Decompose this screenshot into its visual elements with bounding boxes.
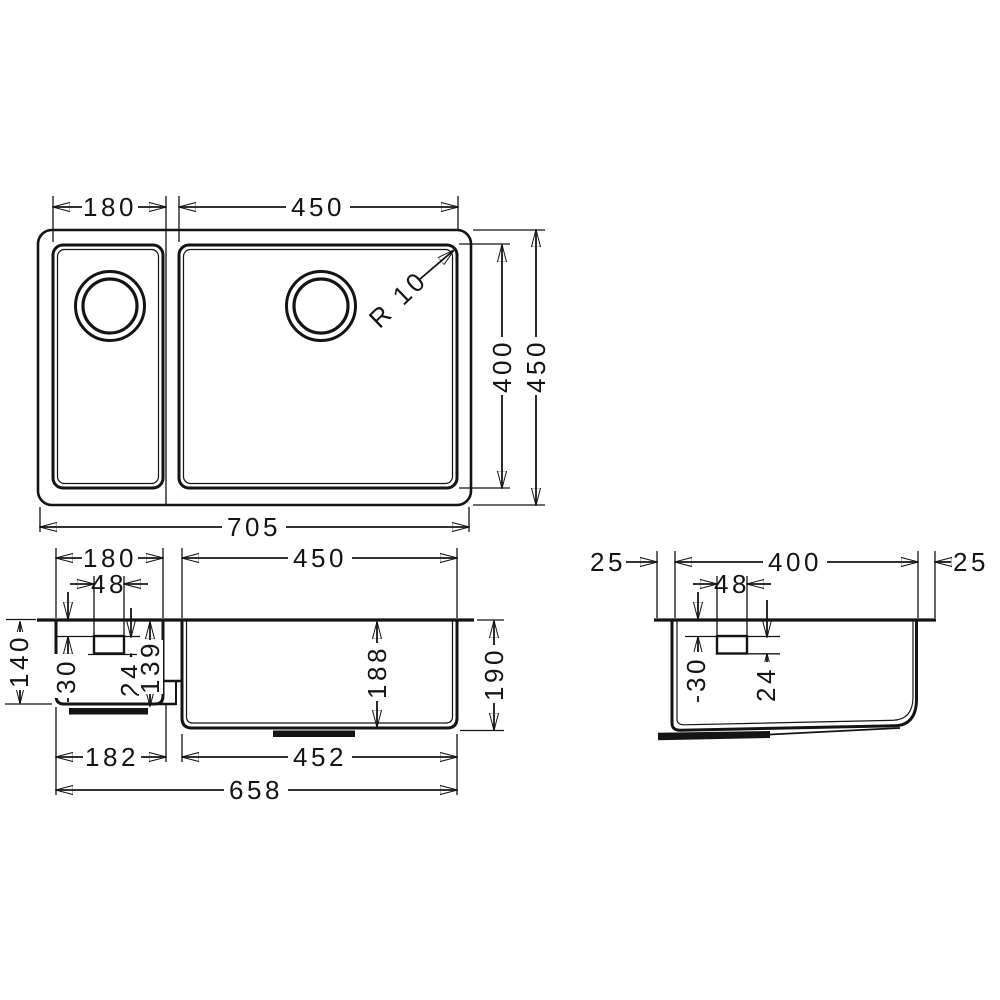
front-drain-top-offset-dim: 30 [51, 658, 81, 694]
front-overall-base-width-dim: 658 [229, 775, 283, 805]
front-large-bowl-width-dim: 450 [293, 543, 347, 573]
large-bowl-drain-circle-inner [294, 279, 348, 333]
side-drain-height-dim: 24 [751, 666, 781, 702]
top-large-bowl-width-dim: 450 [291, 192, 345, 222]
large-bowl-drain-circle [287, 272, 356, 341]
top-small-bowl-width-dim: 180 [83, 192, 137, 222]
side-drain-fitting [658, 731, 770, 740]
side-view: 25 400 25 48 30 24 [590, 547, 989, 740]
front-large-bowl-inner-depth-dim: 188 [362, 645, 392, 699]
corner-radius-label: R 10 [363, 264, 433, 333]
small-bowl-drain-circle-inner [83, 279, 137, 333]
drain-rectangle-side [717, 636, 747, 654]
front-view: 180 450 48 140 30 24 139 [4, 543, 509, 805]
front-large-bowl-height-dim: 190 [479, 647, 509, 701]
side-bowl-depth-dim: 400 [768, 547, 822, 577]
drawing-sheet: 180 450 R 10 400 450 705 [0, 0, 1000, 1000]
large-bowl-front [182, 622, 457, 729]
side-left-overhang-dim: 25 [590, 547, 626, 577]
front-large-bowl-base-width-dim: 452 [293, 742, 347, 772]
small-bowl-drain-circle [76, 272, 145, 341]
large-bowl-front-inner-edge [187, 622, 453, 724]
small-bowl-drain-fitting [69, 708, 148, 715]
front-small-bowl-base-width-dim: 182 [85, 742, 139, 772]
front-small-bowl-height-dim: 140 [4, 634, 34, 688]
small-bowl-top-inner-edge [58, 250, 159, 484]
front-drain-width-dim: 48 [91, 569, 127, 599]
sink-technical-drawing: 180 450 R 10 400 450 705 [0, 0, 1000, 1000]
top-view: 180 450 R 10 400 450 705 [38, 192, 551, 542]
top-bowl-depth-dim: 400 [487, 339, 517, 393]
top-overall-width-dim: 705 [227, 512, 281, 542]
side-drain-top-offset-dim: 30 [681, 656, 711, 692]
small-bowl-top [53, 245, 163, 488]
front-small-bowl-inner-depth-dim: 139 [135, 640, 165, 694]
side-drain-width-dim: 48 [714, 569, 750, 599]
side-right-overhang-dim: 25 [953, 547, 989, 577]
corner-radius-leader [420, 250, 454, 279]
top-overall-depth-dim: 450 [521, 339, 551, 393]
drain-rectangle-front [94, 636, 124, 654]
large-bowl-drain-fitting [273, 731, 355, 738]
